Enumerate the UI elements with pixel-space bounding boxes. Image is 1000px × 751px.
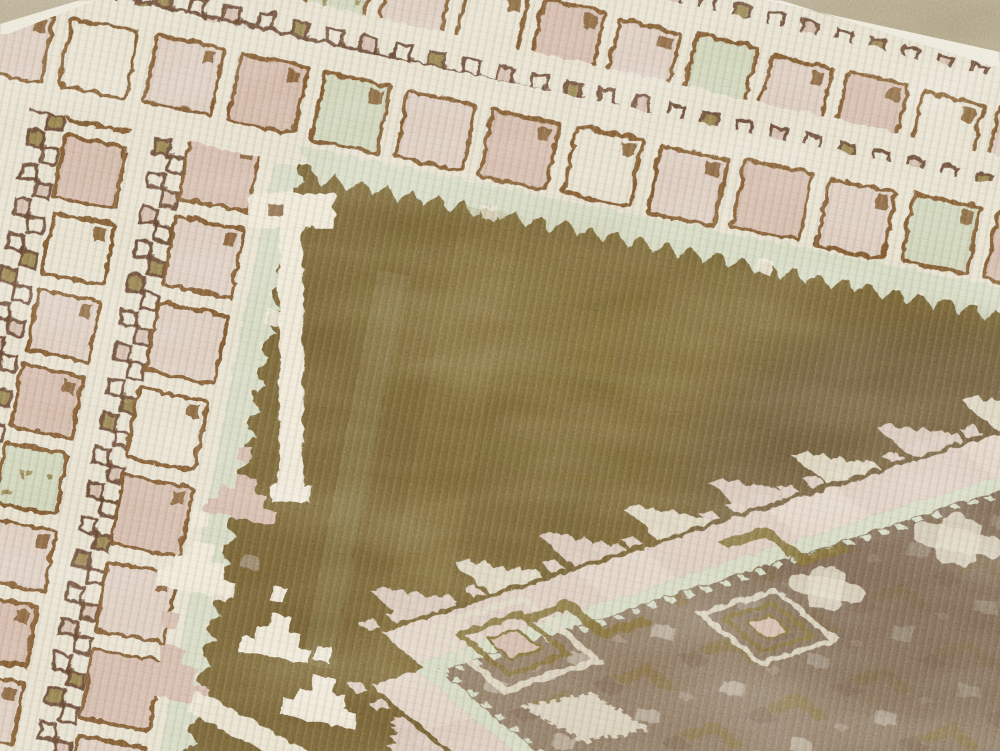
knot-ribs-overlay [0, 0, 1000, 751]
rug-photo: Close-up photograph of the corner of an … [0, 0, 1000, 751]
rug-rotated-layer [0, 0, 1000, 751]
